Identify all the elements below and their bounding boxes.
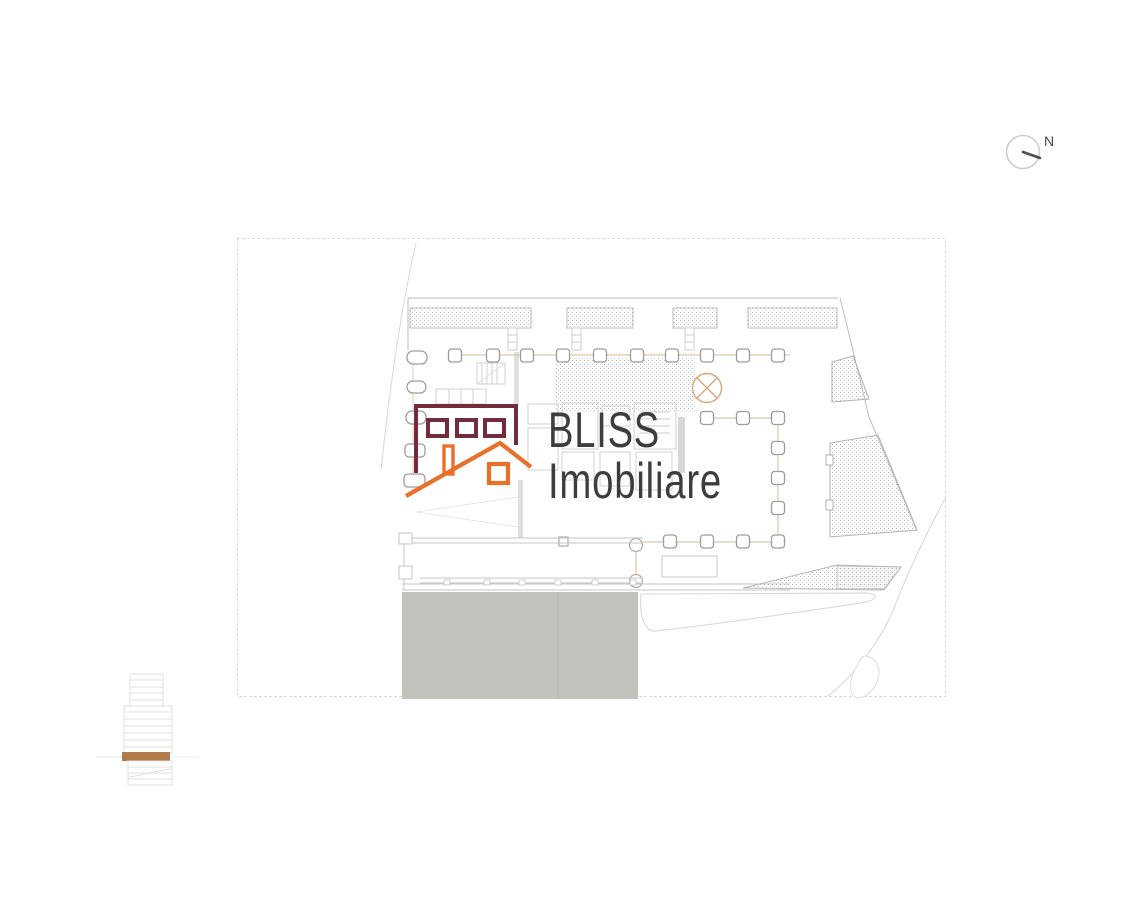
north-compass-icon xyxy=(1007,136,1041,169)
elevation-key xyxy=(96,674,198,785)
watermark-text-line2: Imobiliare xyxy=(548,453,722,509)
watermark-text-line1: BLISS xyxy=(548,402,660,458)
paved-wedge xyxy=(743,565,901,590)
floor-plan-page: N BLISS Imobiliare xyxy=(0,0,1138,900)
slab-fill xyxy=(402,592,638,699)
skylight-circle-icon xyxy=(693,374,722,403)
compass-label: N xyxy=(1044,133,1054,149)
column xyxy=(407,351,427,364)
elevation-highlight-bar xyxy=(122,752,170,761)
hatch-trapezoid-upper xyxy=(832,356,869,402)
hatched-terrace-right xyxy=(826,356,917,537)
floor-plan-drawing: N BLISS Imobiliare xyxy=(0,0,1138,900)
compass-needle xyxy=(1023,152,1040,158)
planter-rectangle xyxy=(662,556,717,577)
top-terrace-hatch xyxy=(410,308,837,328)
wall-connectors xyxy=(508,328,694,350)
hatch-trapezoid-lower xyxy=(830,435,917,537)
